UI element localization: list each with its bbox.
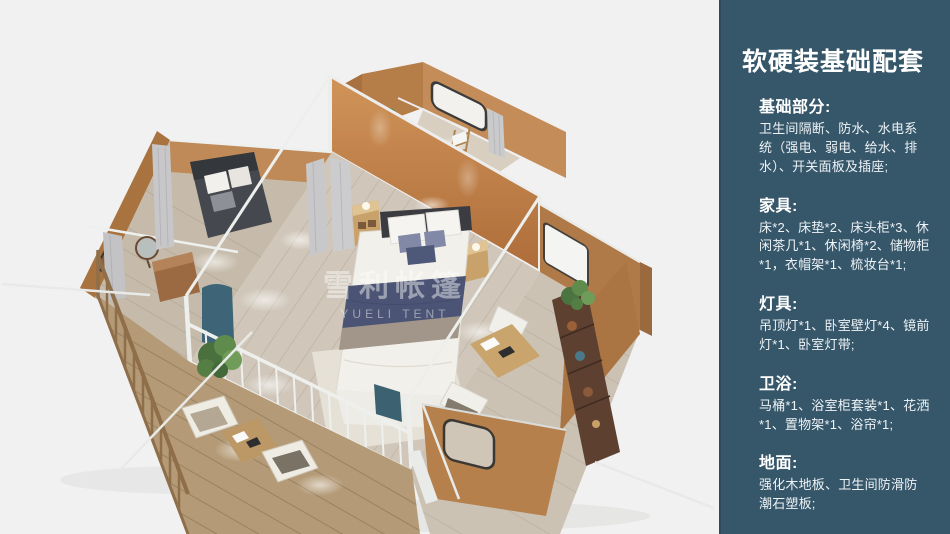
- spec-sidebar: 软硬装基础配套 基础部分: 卫生间隔断、防水、水电系统（强电、弱电、给水、排水）…: [719, 0, 950, 534]
- section-bathroom: 卫浴: 马桶*1、浴室柜套装*1、花洒*1、置物架*1、浴帘*1;: [759, 370, 930, 435]
- watermark-en: YUELI TENT: [340, 307, 449, 321]
- section-lighting-body: 吊顶灯*1、卧室壁灯*4、镜前灯*1、卧室灯带;: [759, 317, 930, 355]
- section-bathroom-body: 马桶*1、浴室柜套装*1、花洒*1、置物架*1、浴帘*1;: [759, 397, 930, 435]
- section-flooring: 地面: 强化木地板、卫生间防滑防潮石塑板;: [759, 449, 930, 514]
- sidebar-title: 软硬装基础配套: [742, 42, 930, 78]
- section-bathroom-heading: 卫浴:: [759, 370, 930, 394]
- section-furniture: 家具: 床*2、床垫*2、床头柜*3、休闲茶几*1、休闲椅*2、储物柜*1，衣帽…: [759, 192, 930, 276]
- slide: 雪利帐篷 YUELI TENT 软硬装基础配套 基础部分: 卫生间隔断、防水、水…: [0, 0, 950, 534]
- watermark-cn: 雪利帐篷: [323, 270, 467, 303]
- section-basics-heading: 基础部分:: [759, 93, 930, 117]
- section-flooring-heading: 地面:: [759, 449, 930, 473]
- section-lighting: 灯具: 吊顶灯*1、卧室壁灯*4、镜前灯*1、卧室灯带;: [759, 290, 930, 355]
- section-basics-body: 卫生间隔断、防水、水电系统（强电、弱电、给水、排水）、开关面板及插座;: [759, 120, 930, 177]
- floorplan-3d-render: 雪利帐篷 YUELI TENT: [0, 0, 719, 534]
- floorplan-render-area: 雪利帐篷 YUELI TENT: [0, 0, 719, 534]
- section-basics: 基础部分: 卫生间隔断、防水、水电系统（强电、弱电、给水、排水）、开关面板及插座…: [759, 93, 930, 177]
- section-flooring-body: 强化木地板、卫生间防滑防潮石塑板;: [759, 476, 930, 514]
- watermark: 雪利帐篷 YUELI TENT: [323, 270, 467, 321]
- section-furniture-heading: 家具:: [759, 192, 930, 216]
- section-furniture-body: 床*2、床垫*2、床头柜*3、休闲茶几*1、休闲椅*2、储物柜*1，衣帽架*1、…: [759, 219, 930, 276]
- section-lighting-heading: 灯具:: [759, 290, 930, 314]
